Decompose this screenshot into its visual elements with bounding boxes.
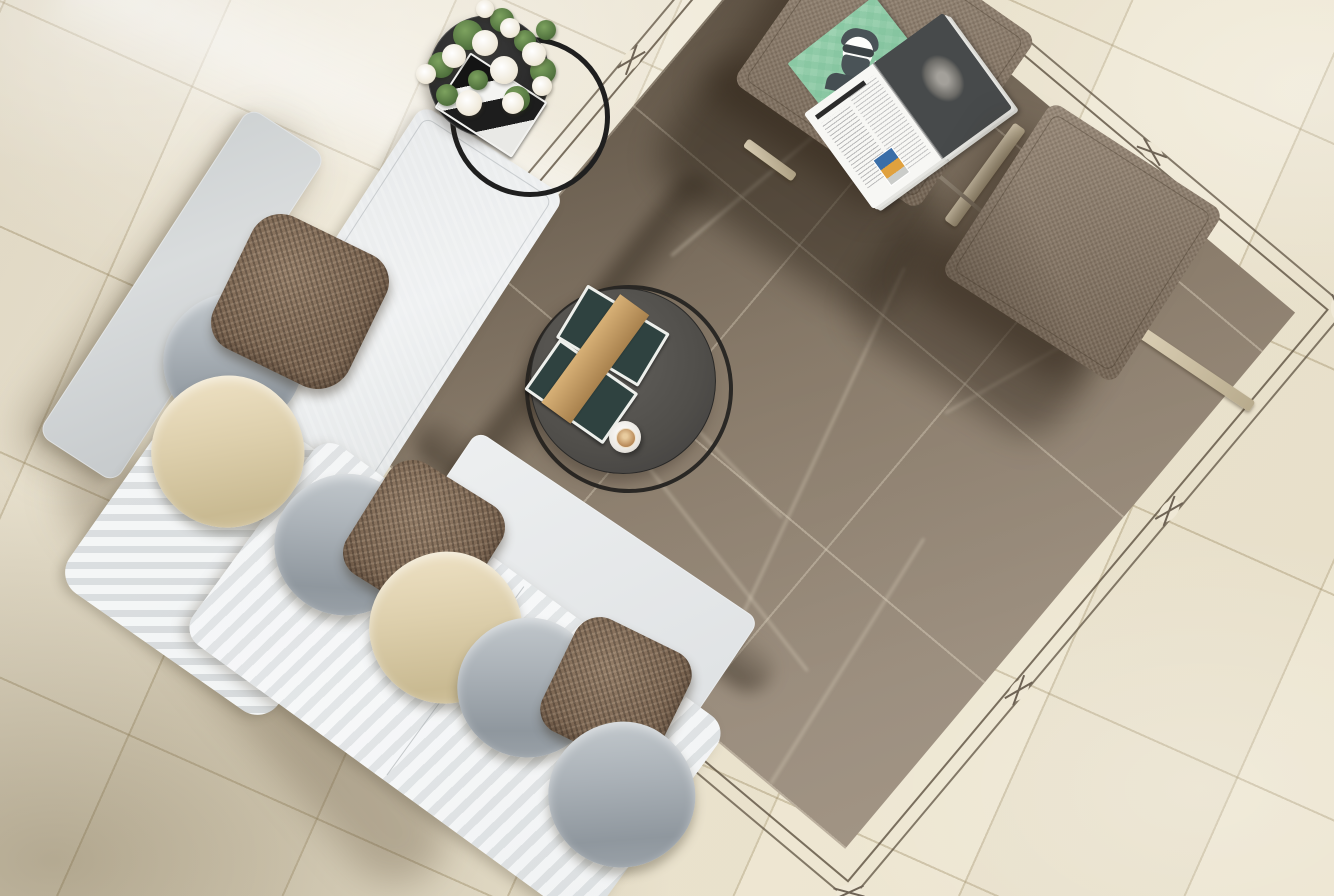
coffee-cup	[609, 421, 641, 453]
rose-icon	[490, 56, 518, 84]
rose-icon	[416, 64, 436, 84]
rose-icon	[500, 18, 520, 38]
latte-icon	[616, 428, 636, 448]
photo-inset	[872, 146, 910, 186]
rose-icon	[472, 30, 498, 56]
rose-bouquet	[408, 0, 568, 137]
rose-icon	[476, 0, 494, 18]
leaf-icon	[468, 70, 488, 90]
marble-vein	[770, 538, 925, 785]
leaf-icon	[536, 20, 556, 40]
rose-icon	[502, 92, 524, 114]
rose-icon	[456, 90, 482, 116]
leaf-icon	[436, 84, 458, 106]
rose-icon	[442, 44, 466, 68]
rose-icon	[522, 42, 546, 66]
rose-icon	[532, 76, 552, 96]
living-room-scene: Хипстори	[0, 0, 1334, 896]
